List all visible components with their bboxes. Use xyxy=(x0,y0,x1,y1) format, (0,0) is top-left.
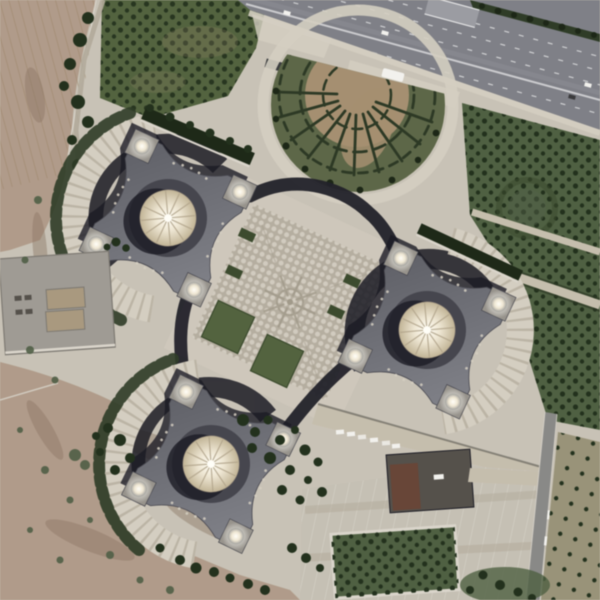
lawn-mottle xyxy=(162,26,238,58)
satellite-image xyxy=(0,0,600,600)
lawn-mottle xyxy=(130,71,186,93)
parking-garden xyxy=(331,526,459,598)
service-structure-west xyxy=(0,251,115,354)
satellite-map-viewport[interactable] xyxy=(0,0,600,600)
garden-circle-center xyxy=(508,189,546,227)
service-building-south xyxy=(386,449,474,513)
car xyxy=(434,474,444,480)
